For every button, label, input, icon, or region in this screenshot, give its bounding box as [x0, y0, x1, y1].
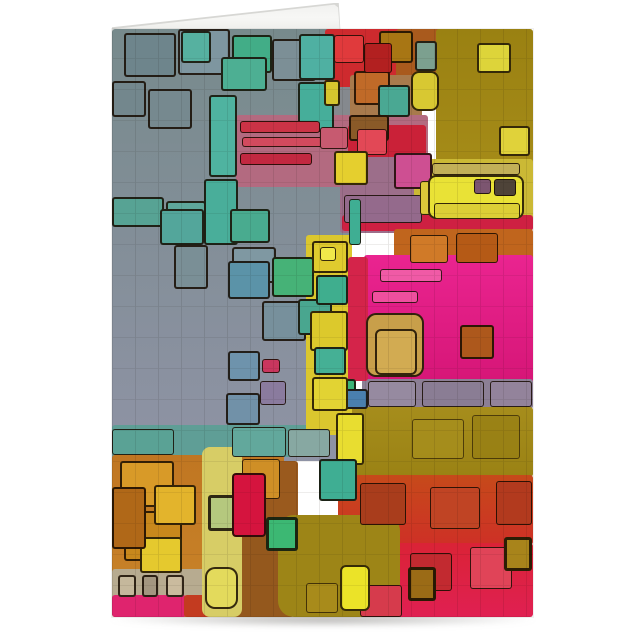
- art-block: [456, 233, 498, 263]
- product-photo: [0, 0, 644, 644]
- art-block: [230, 209, 270, 243]
- art-block: [375, 329, 417, 375]
- art-block: [226, 393, 260, 425]
- art-block: [160, 209, 204, 245]
- art-block: [124, 33, 176, 77]
- art-block: [112, 487, 146, 549]
- art-block: [148, 89, 192, 129]
- art-block: [460, 325, 494, 359]
- art-block: [336, 413, 364, 465]
- art-block: [490, 381, 532, 407]
- art-block: [434, 203, 520, 219]
- art-block: [411, 71, 439, 111]
- art-block: [360, 483, 406, 525]
- art-block: [221, 57, 267, 91]
- art-block: [412, 419, 464, 459]
- art-block: [312, 377, 348, 411]
- art-block: [299, 34, 335, 80]
- art-block: [368, 381, 416, 407]
- art-block: [242, 137, 330, 147]
- art-block: [140, 537, 182, 573]
- art-block: [349, 199, 361, 245]
- art-block: [504, 537, 532, 571]
- art-block: [378, 85, 410, 117]
- art-patch: [348, 257, 368, 381]
- art-block: [314, 347, 346, 375]
- art-block: [319, 459, 357, 501]
- art-block: [432, 163, 520, 175]
- art-block: [205, 567, 238, 609]
- art-block: [306, 583, 338, 613]
- art-block: [260, 381, 286, 405]
- art-block: [112, 429, 174, 455]
- art-block: [410, 235, 448, 263]
- art-block: [316, 275, 348, 305]
- art-block: [380, 269, 442, 282]
- art-block: [320, 127, 348, 149]
- card-back-fold: [112, 3, 342, 30]
- art-block: [310, 311, 348, 351]
- art-block: [496, 481, 532, 525]
- art-block: [262, 359, 280, 373]
- art-block: [334, 35, 364, 63]
- art-block: [154, 485, 196, 525]
- art-block: [240, 121, 320, 133]
- art-block: [288, 429, 330, 457]
- abstract-artwork: [112, 29, 533, 617]
- art-block: [112, 81, 146, 117]
- art-block: [174, 245, 208, 289]
- art-block: [474, 179, 491, 194]
- art-block: [472, 415, 520, 459]
- art-block: [232, 473, 266, 537]
- greeting-card-front: [112, 29, 533, 617]
- art-block: [430, 487, 480, 529]
- art-block: [324, 80, 340, 106]
- art-block: [477, 43, 511, 73]
- art-block: [334, 151, 368, 185]
- art-block: [232, 427, 286, 457]
- art-block: [266, 517, 298, 551]
- art-block: [499, 126, 530, 156]
- art-block: [372, 291, 418, 303]
- art-block: [228, 351, 260, 381]
- art-block: [408, 567, 436, 601]
- art-block: [364, 43, 392, 73]
- art-block: [228, 261, 270, 299]
- art-block: [340, 565, 370, 611]
- art-block: [494, 179, 516, 196]
- art-block: [166, 575, 184, 597]
- art-block: [240, 153, 312, 165]
- art-block: [415, 41, 437, 71]
- art-block: [112, 197, 164, 227]
- art-block: [142, 575, 158, 597]
- art-block: [272, 257, 314, 297]
- art-patch: [112, 595, 186, 617]
- art-block: [209, 95, 237, 177]
- art-block: [422, 381, 484, 407]
- art-block: [118, 575, 136, 597]
- art-block: [181, 31, 211, 63]
- art-block: [320, 247, 336, 261]
